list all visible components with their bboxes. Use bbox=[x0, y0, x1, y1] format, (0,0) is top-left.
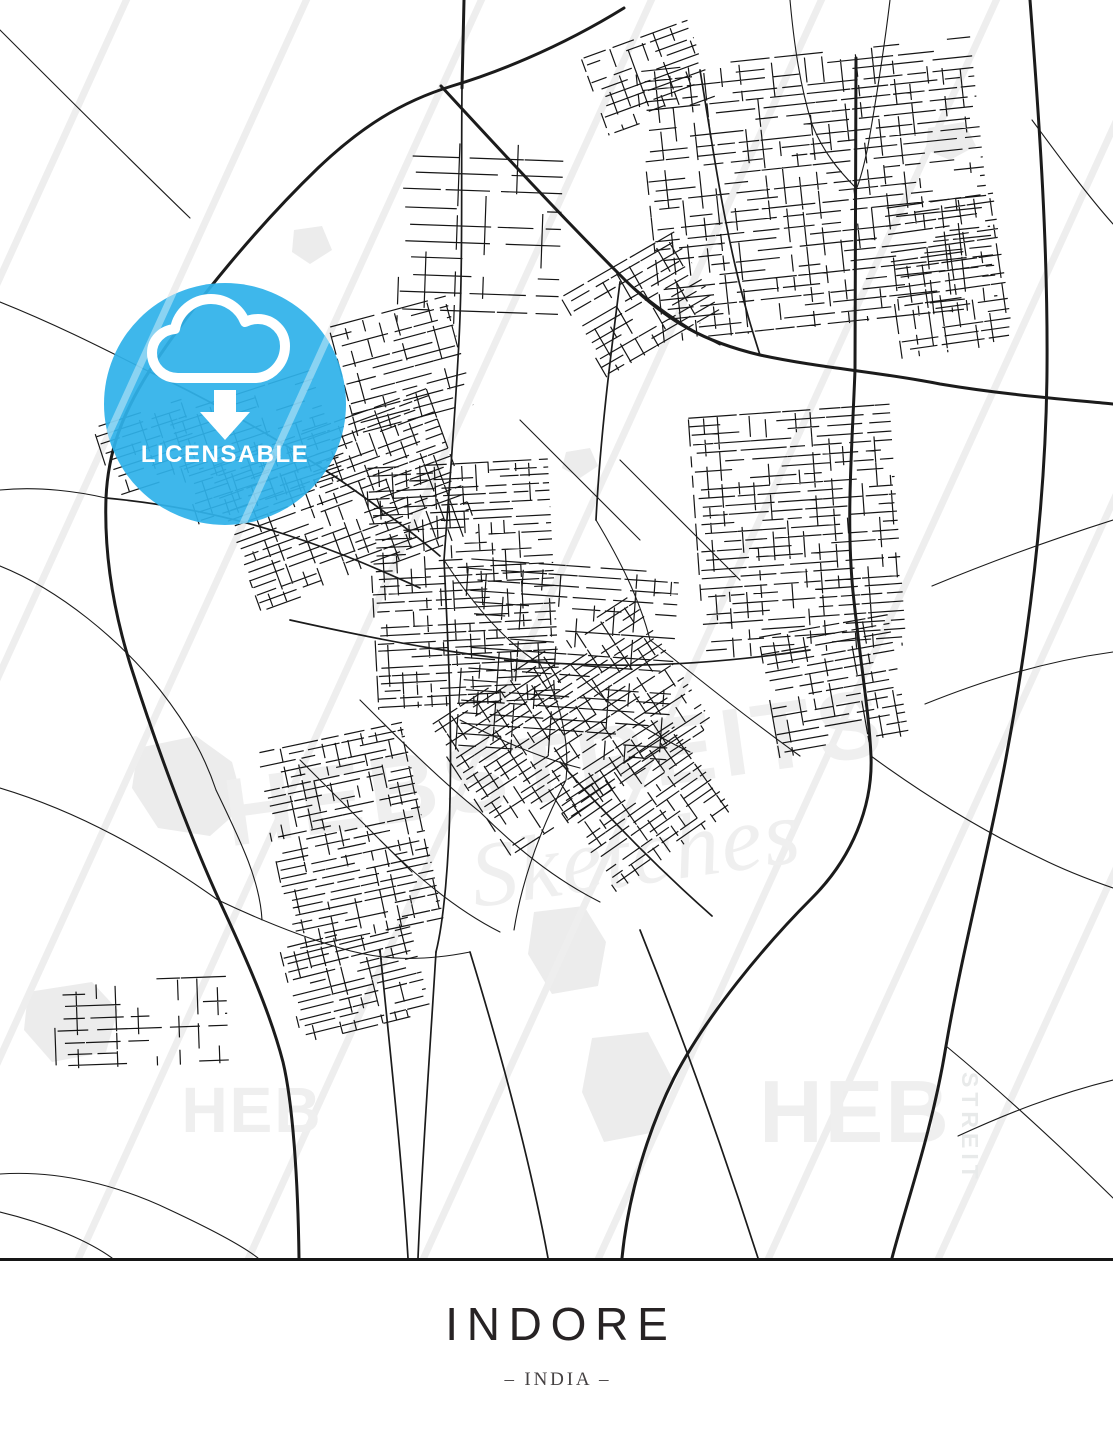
licensable-badge[interactable]: LICENSABLE bbox=[104, 283, 346, 525]
poster-caption: INDORE – INDIA – bbox=[0, 1258, 1113, 1440]
poster-subtitle: – INDIA – bbox=[502, 1370, 612, 1389]
watermark-streit-vertical: STREIT bbox=[957, 1072, 983, 1184]
page-title: INDORE bbox=[436, 1301, 676, 1347]
street-map-canvas: HEBSTREITSSketchesHEBHEBSTREIT LICENSABL… bbox=[0, 0, 1113, 1258]
map-poster: HEBSTREITSSketchesHEBHEBSTREIT LICENSABL… bbox=[0, 0, 1113, 1440]
city-map: HEBSTREITSSketchesHEBHEBSTREIT LICENSABL… bbox=[0, 0, 1113, 1258]
watermark-heb-left: HEB bbox=[181, 1074, 322, 1146]
badge-label: LICENSABLE bbox=[141, 441, 309, 468]
watermark-heb-right: HEB bbox=[759, 1062, 951, 1161]
